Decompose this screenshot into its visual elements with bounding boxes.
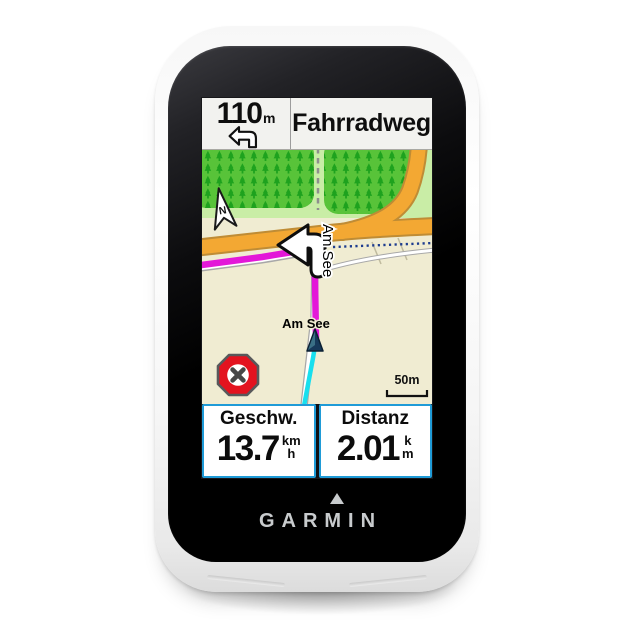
stop-route-icon — [215, 352, 261, 398]
navigation-map[interactable]: N Am See Am See 50m — [202, 150, 432, 404]
field-unit: km h — [282, 434, 301, 461]
field-value: 2.01 — [337, 431, 399, 466]
unit-bottom: m — [402, 447, 414, 461]
field-label: Distanz — [341, 407, 409, 431]
unit-top: km — [282, 434, 301, 448]
turn-guidance-bar[interactable]: 110 m Fahrradweg — [202, 98, 432, 150]
turn-left-arrow-icon — [223, 124, 263, 149]
street-label-horizontal: Am See — [282, 316, 330, 331]
garmin-delta-icon — [330, 493, 344, 504]
stop-route-button[interactable] — [215, 352, 261, 398]
forest-area — [202, 150, 410, 214]
brand-logo: GARMIN — [155, 510, 479, 533]
scale-label: 50m — [394, 373, 419, 387]
product-photo: 110 m Fahrradweg — [0, 0, 634, 640]
data-fields-row: Geschw. 13.7 km h Distanz 2.01 k — [202, 404, 432, 478]
next-street-name: Fahrradweg — [291, 98, 432, 149]
lap-button[interactable] — [207, 575, 285, 587]
gps-device: 110 m Fahrradweg — [155, 26, 479, 592]
data-field-distance[interactable]: Distanz 2.01 k m — [319, 404, 433, 478]
unit-bottom: h — [287, 447, 295, 461]
device-screen: 110 m Fahrradweg — [202, 98, 432, 478]
start-stop-button[interactable] — [349, 575, 427, 587]
field-unit: k m — [402, 434, 414, 461]
field-label: Geschw. — [220, 407, 297, 431]
unit-top: k — [404, 434, 411, 448]
street-label-vertical: Am See — [319, 224, 336, 277]
turn-distance-cell: 110 m — [202, 98, 290, 149]
field-value: 13.7 — [217, 431, 279, 466]
turn-distance-unit: m — [263, 111, 275, 125]
data-field-speed[interactable]: Geschw. 13.7 km h — [202, 404, 316, 478]
